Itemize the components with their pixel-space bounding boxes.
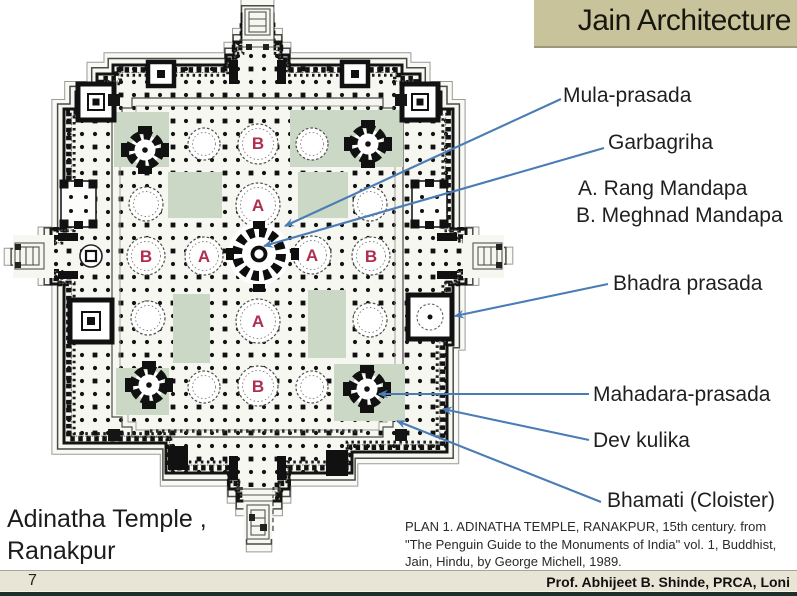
svg-text:B: B: [252, 377, 264, 396]
svg-text:B: B: [365, 247, 377, 266]
svg-text:A: A: [252, 196, 264, 215]
svg-text:A: A: [252, 312, 264, 331]
svg-text:B: B: [140, 247, 152, 266]
svg-text:B: B: [252, 134, 264, 153]
svg-text:A: A: [198, 247, 210, 266]
svg-text:A: A: [306, 246, 318, 265]
